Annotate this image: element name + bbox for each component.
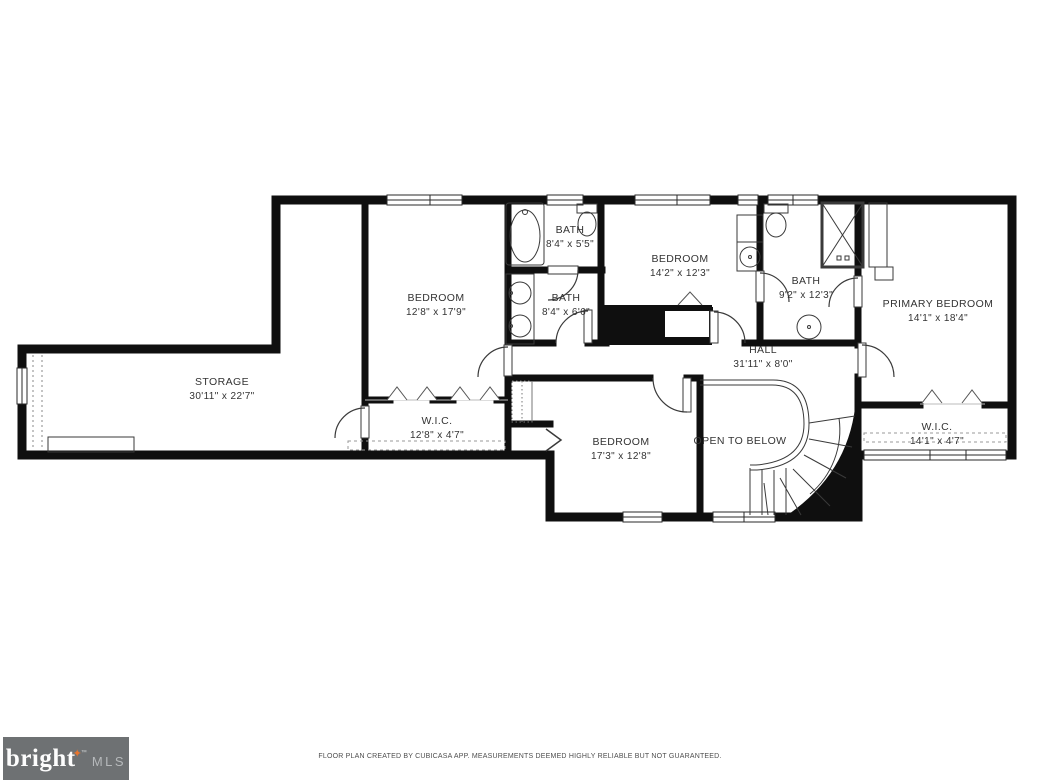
svg-text:W.I.C.: W.I.C. [422,415,453,427]
svg-text:9'2" x 12'3": 9'2" x 12'3" [779,290,833,301]
svg-text:BATH: BATH [552,292,581,304]
floorplan-canvas: STORAGE 30'11" x 22'7" BEDROOM 12'8" x 1… [0,0,1040,735]
svg-text:17'3" x 12'8": 17'3" x 12'8" [591,451,651,462]
svg-text:BATH: BATH [792,275,821,287]
window [635,195,710,205]
floorplan-page: { "plan": { "rooms": { "storage": {"name… [0,0,1040,780]
closet-bedroom-mid [663,309,711,339]
window [864,450,1006,460]
svg-text:8'4" x 5'5": 8'4" x 5'5" [546,239,594,250]
svg-text:W.I.C.: W.I.C. [922,421,953,433]
svg-text:12'8" x 4'7": 12'8" x 4'7" [410,430,464,441]
svg-text:HALL: HALL [749,344,777,356]
window [17,368,27,404]
floorplan-svg: STORAGE 30'11" x 22'7" BEDROOM 12'8" x 1… [0,0,1040,735]
svg-text:31'11" x 8'0": 31'11" x 8'0" [733,359,792,370]
window [738,195,758,205]
svg-text:14'1" x 18'4": 14'1" x 18'4" [908,313,968,324]
window [713,512,775,522]
svg-text:14'1" x 4'7": 14'1" x 4'7" [910,436,964,447]
window [623,512,662,522]
svg-text:BATH: BATH [556,224,585,236]
svg-text:BEDROOM: BEDROOM [407,292,464,304]
svg-text:14'2" x 12'3": 14'2" x 12'3" [650,268,710,279]
svg-text:OPEN TO BELOW: OPEN TO BELOW [694,435,787,447]
svg-text:PRIMARY BEDROOM: PRIMARY BEDROOM [883,298,994,310]
svg-text:STORAGE: STORAGE [195,376,249,388]
svg-text:BEDROOM: BEDROOM [592,436,649,448]
svg-text:BEDROOM: BEDROOM [651,253,708,265]
disclaimer-text: FLOOR PLAN CREATED BY CUBICASA APP. MEAS… [0,753,1040,760]
room-label-open-to-below: OPEN TO BELOW [694,435,787,447]
svg-text:8'4" x 6'6": 8'4" x 6'6" [542,307,590,318]
window [387,195,462,205]
svg-text:12'8" x 17'9": 12'8" x 17'9" [406,307,466,318]
svg-text:30'11" x 22'7": 30'11" x 22'7" [189,391,254,402]
